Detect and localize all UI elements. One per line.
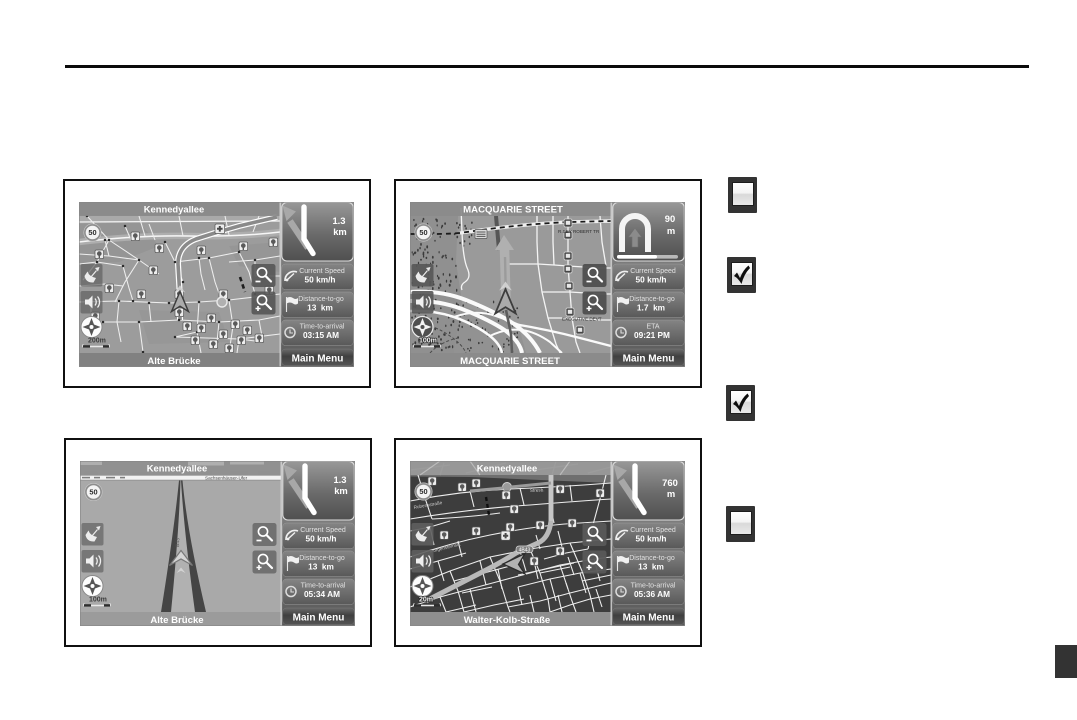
svg-text:90: 90 [665,213,675,224]
svg-text:Sachsenhäuser-Ufer: Sachsenhäuser-Ufer [205,475,248,480]
svg-text:50 km/h: 50 km/h [305,275,336,285]
svg-text:13 km: 13 km [308,562,334,572]
svg-text:760: 760 [662,477,678,488]
svg-text:100m: 100m [89,597,107,604]
svg-text:1.7 km: 1.7 km [637,303,665,313]
svg-text:13 km: 13 km [307,303,333,313]
svg-text:20m: 20m [419,597,433,604]
svg-text:50 km/h: 50 km/h [306,534,337,544]
svg-text:50 km/h: 50 km/h [636,534,667,544]
svg-text:50: 50 [419,487,427,496]
svg-text:Kennedyallee: Kennedyallee [477,463,537,474]
svg-text:100m: 100m [419,338,437,345]
svg-text:1.3: 1.3 [333,474,346,485]
svg-text:Main Menu: Main Menu [292,354,344,365]
svg-text:200m: 200m [88,338,106,345]
svg-text:km: km [334,485,348,496]
svg-text:m: m [667,488,675,499]
svg-text:13 km: 13 km [638,562,664,572]
svg-text:R.SEY ROBERT TR: R.SEY ROBERT TR [558,229,600,234]
svg-text:03:15 AM: 03:15 AM [303,330,339,340]
svg-text:Alte Brücke: Alte Brücke [147,356,200,367]
svg-text:km: km [333,226,347,237]
svg-text:4B43: 4B43 [519,547,531,553]
svg-text:m: m [667,225,675,236]
svg-text:Walter-Kolb-Straße: Walter-Kolb-Straße [464,615,551,626]
svg-text:Main Menu: Main Menu [623,354,675,365]
svg-text:05:34 AM: 05:34 AM [304,589,340,599]
svg-text:Main Menu: Main Menu [293,613,345,624]
svg-text:MACQUARIE STREET: MACQUARIE STREET [463,205,563,216]
svg-text:50: 50 [89,488,97,497]
svg-text:Kennedyallee: Kennedyallee [144,204,204,215]
svg-text:MACQUARIE STREET: MACQUARIE STREET [460,356,560,367]
svg-text:50: 50 [88,228,96,237]
svg-text:Main Menu: Main Menu [623,613,675,624]
svg-text:09:21 PM: 09:21 PM [634,330,670,340]
svg-text:Stresb.: Stresb. [530,487,545,493]
svg-text:05:36 AM: 05:36 AM [634,589,670,599]
svg-text:50: 50 [419,228,427,237]
svg-text:Alte Brücke: Alte Brücke [150,615,203,626]
svg-text:EXECUTIVE DEVT: EXECUTIVE DEVT [562,317,602,322]
svg-text:1.3: 1.3 [332,215,345,226]
svg-text:B43: B43 [175,538,181,547]
svg-text:50 km/h: 50 km/h [636,275,667,285]
